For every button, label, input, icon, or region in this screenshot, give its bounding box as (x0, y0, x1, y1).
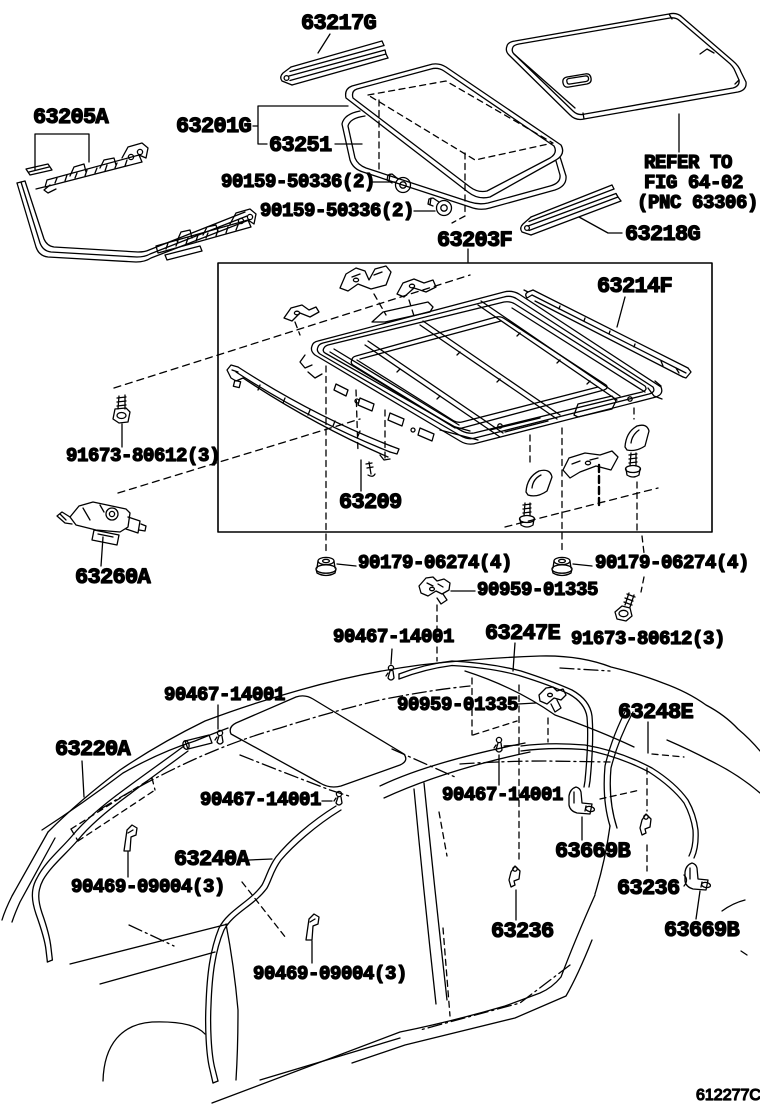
svg-text:90467-14001: 90467-14001 (164, 684, 285, 706)
svg-text:63248E: 63248E (618, 700, 694, 725)
svg-text:63217G: 63217G (301, 11, 377, 36)
svg-text:63240A: 63240A (174, 847, 251, 872)
svg-text:63209: 63209 (339, 490, 402, 515)
svg-text:63201G: 63201G (176, 114, 252, 139)
svg-text:63203F: 63203F (437, 228, 512, 253)
svg-text:63669B: 63669B (555, 839, 631, 864)
svg-text:REFER TO: REFER TO (644, 152, 732, 174)
svg-text:90179-06274(4): 90179-06274(4) (595, 552, 749, 574)
svg-text:90159-50336(2): 90159-50336(2) (260, 200, 414, 222)
svg-text:90467-14001: 90467-14001 (442, 784, 563, 806)
svg-text:90469-09004(3): 90469-09004(3) (253, 963, 407, 985)
svg-text:63214F: 63214F (597, 274, 672, 299)
svg-text:90159-50336(2): 90159-50336(2) (221, 171, 375, 193)
svg-text:90467-14001: 90467-14001 (333, 626, 454, 648)
svg-text:612277C: 612277C (696, 1087, 760, 1104)
svg-text:63260A: 63260A (75, 565, 152, 590)
svg-text:63247E: 63247E (485, 621, 561, 646)
svg-text:91673-80612(3): 91673-80612(3) (571, 628, 725, 650)
svg-text:90959-01335: 90959-01335 (477, 579, 598, 601)
svg-text:90469-09004(3): 90469-09004(3) (71, 876, 225, 898)
svg-text:90467-14001: 90467-14001 (200, 789, 321, 811)
svg-text:63236: 63236 (617, 876, 680, 901)
svg-text:63251: 63251 (269, 133, 332, 158)
svg-text:90959-01335: 90959-01335 (397, 694, 518, 716)
svg-text:FIG 64-02: FIG 64-02 (644, 172, 743, 194)
svg-text:63236: 63236 (491, 919, 554, 944)
svg-text:63220A: 63220A (55, 737, 132, 762)
svg-text:91673-80612(3): 91673-80612(3) (66, 445, 220, 467)
svg-text:90179-06274(4): 90179-06274(4) (358, 552, 512, 574)
svg-text:(PNC 63306): (PNC 63306) (637, 192, 758, 214)
svg-text:63218G: 63218G (625, 222, 701, 247)
svg-text:63205A: 63205A (33, 105, 110, 130)
svg-text:63669B: 63669B (664, 918, 740, 943)
